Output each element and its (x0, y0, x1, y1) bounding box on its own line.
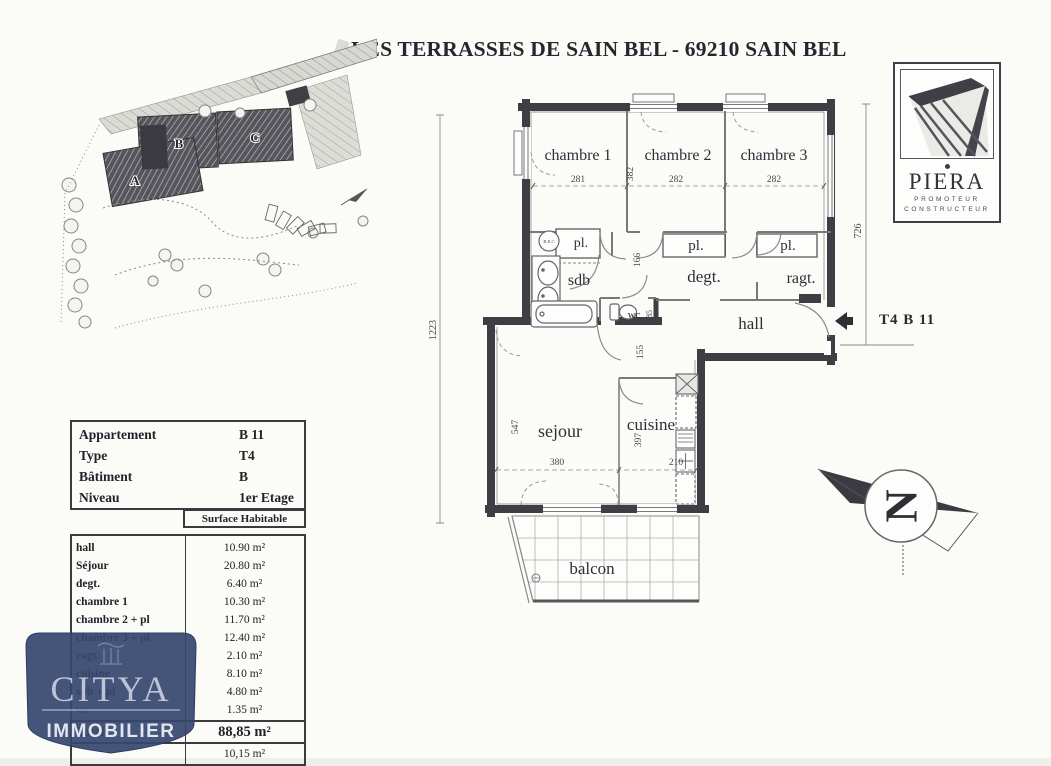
room-sdb: sdb (568, 272, 590, 289)
row-label: hall (72, 542, 185, 554)
compass-north-letter: N (876, 489, 927, 522)
info-label: Bâtiment (79, 469, 132, 484)
citya-logo: CITYA IMMOBILIER (14, 626, 208, 758)
info-label: Appartement (79, 427, 156, 442)
room-ragt: ragt. (787, 270, 816, 287)
piera-name: PIERA (900, 170, 994, 193)
site-plan: A B C (55, 33, 377, 333)
dim-wc-width: 85 (645, 310, 654, 318)
info-value: B 11 (239, 424, 264, 445)
north-compass-icon: N (818, 469, 978, 576)
piera-subtitle-2: CONSTRUCTEUR (900, 206, 994, 213)
dim-left-total: 1223 (428, 320, 439, 340)
row-label: Séjour (72, 560, 185, 572)
room-balcon: balcon (569, 559, 615, 578)
table-row: Séjour 20.80 m² (72, 557, 304, 575)
dim-right-total: 726 (853, 224, 864, 239)
row-value: 6.40 m² (185, 578, 304, 590)
row-value: 10.30 m² (185, 596, 304, 608)
info-value: 1er Etage (239, 487, 294, 508)
dim-chambre2-width: 282 (669, 175, 684, 185)
room-hall: hall (738, 314, 764, 333)
plan-reference-label: T4 B 11 (879, 312, 935, 328)
row-label: chambre 1 (72, 596, 185, 608)
surface-header: Surface Habitable (183, 510, 306, 528)
room-pl2: pl. (688, 238, 703, 254)
info-value: T4 (239, 445, 255, 466)
info-row: Type T4 (72, 445, 304, 466)
dim-cuisine-depth: 397 (634, 433, 644, 448)
dim-chambre-depth: 382 (626, 167, 636, 182)
piera-logo: PIERA PROMOTEUR CONSTRUCTEUR (893, 62, 1001, 223)
piera-subtitle-1: PROMOTEUR (900, 196, 994, 203)
dim-sejour-width: 380 (550, 458, 565, 468)
row-value: 11.70 m² (185, 614, 304, 626)
table-row: hall 10.90 m² (72, 539, 304, 557)
table-row: degt. 6.40 m² (72, 575, 304, 593)
piera-logo-image (900, 69, 994, 159)
room-sejour: sejour (538, 421, 582, 441)
info-row: Bâtiment B (72, 466, 304, 487)
row-value: 20.80 m² (185, 560, 304, 572)
dim-corridor: 166 (633, 253, 643, 268)
dim-chambre3-width: 282 (767, 175, 782, 185)
row-label: degt. (72, 578, 185, 590)
info-row: Niveau 1er Etage (72, 487, 304, 508)
citya-name: CITYA (51, 669, 172, 709)
citya-subtitle: IMMOBILIER (47, 721, 176, 742)
info-label: Type (79, 448, 107, 463)
room-cuisine: cuisine (627, 415, 675, 434)
row-value: 10.90 m² (185, 542, 304, 554)
dim-chambre1-width: 281 (571, 175, 586, 185)
apartment-info-box: Appartement B 11 Type T4 Bâtiment B Nive… (70, 420, 306, 510)
scanned-floor-plan-page: LES TERRASSES DE SAIN BEL - 69210 SAIN B… (0, 0, 1051, 758)
dim-passage: 155 (636, 345, 646, 360)
room-chambre3: chambre 3 (740, 147, 807, 164)
info-label: Niveau (79, 490, 120, 505)
kitchen-fixtures (676, 374, 698, 504)
water-heater-label: B.E.C (543, 239, 554, 244)
room-pl3: pl. (780, 238, 795, 254)
page-title: LES TERRASSES DE SAIN BEL - 69210 SAIN B… (351, 37, 847, 62)
room-chambre2: chambre 2 (644, 147, 711, 164)
entrance-arrow-icon (835, 312, 853, 330)
info-value: B (239, 466, 248, 487)
dim-sejour-depth: 547 (511, 420, 521, 435)
site-parking (265, 204, 336, 236)
building-c-label: C (250, 130, 259, 145)
room-chambre1: chambre 1 (544, 147, 611, 164)
info-row: Appartement B 11 (72, 424, 304, 445)
site-north-arrow-icon (341, 189, 367, 205)
room-wc: wc (628, 309, 641, 321)
building-b-label: B (175, 136, 184, 151)
piera-beams-icon (901, 70, 994, 158)
table-row: chambre 1 10.30 m² (72, 593, 304, 611)
row-label: chambre 2 + pl (72, 614, 185, 626)
room-pl1: pl. (574, 236, 588, 251)
room-degt: degt. (687, 267, 721, 286)
building-a-label: A (130, 173, 140, 188)
dim-cuisine-width: 210 (669, 458, 684, 468)
ragt-wall-block (799, 294, 821, 303)
